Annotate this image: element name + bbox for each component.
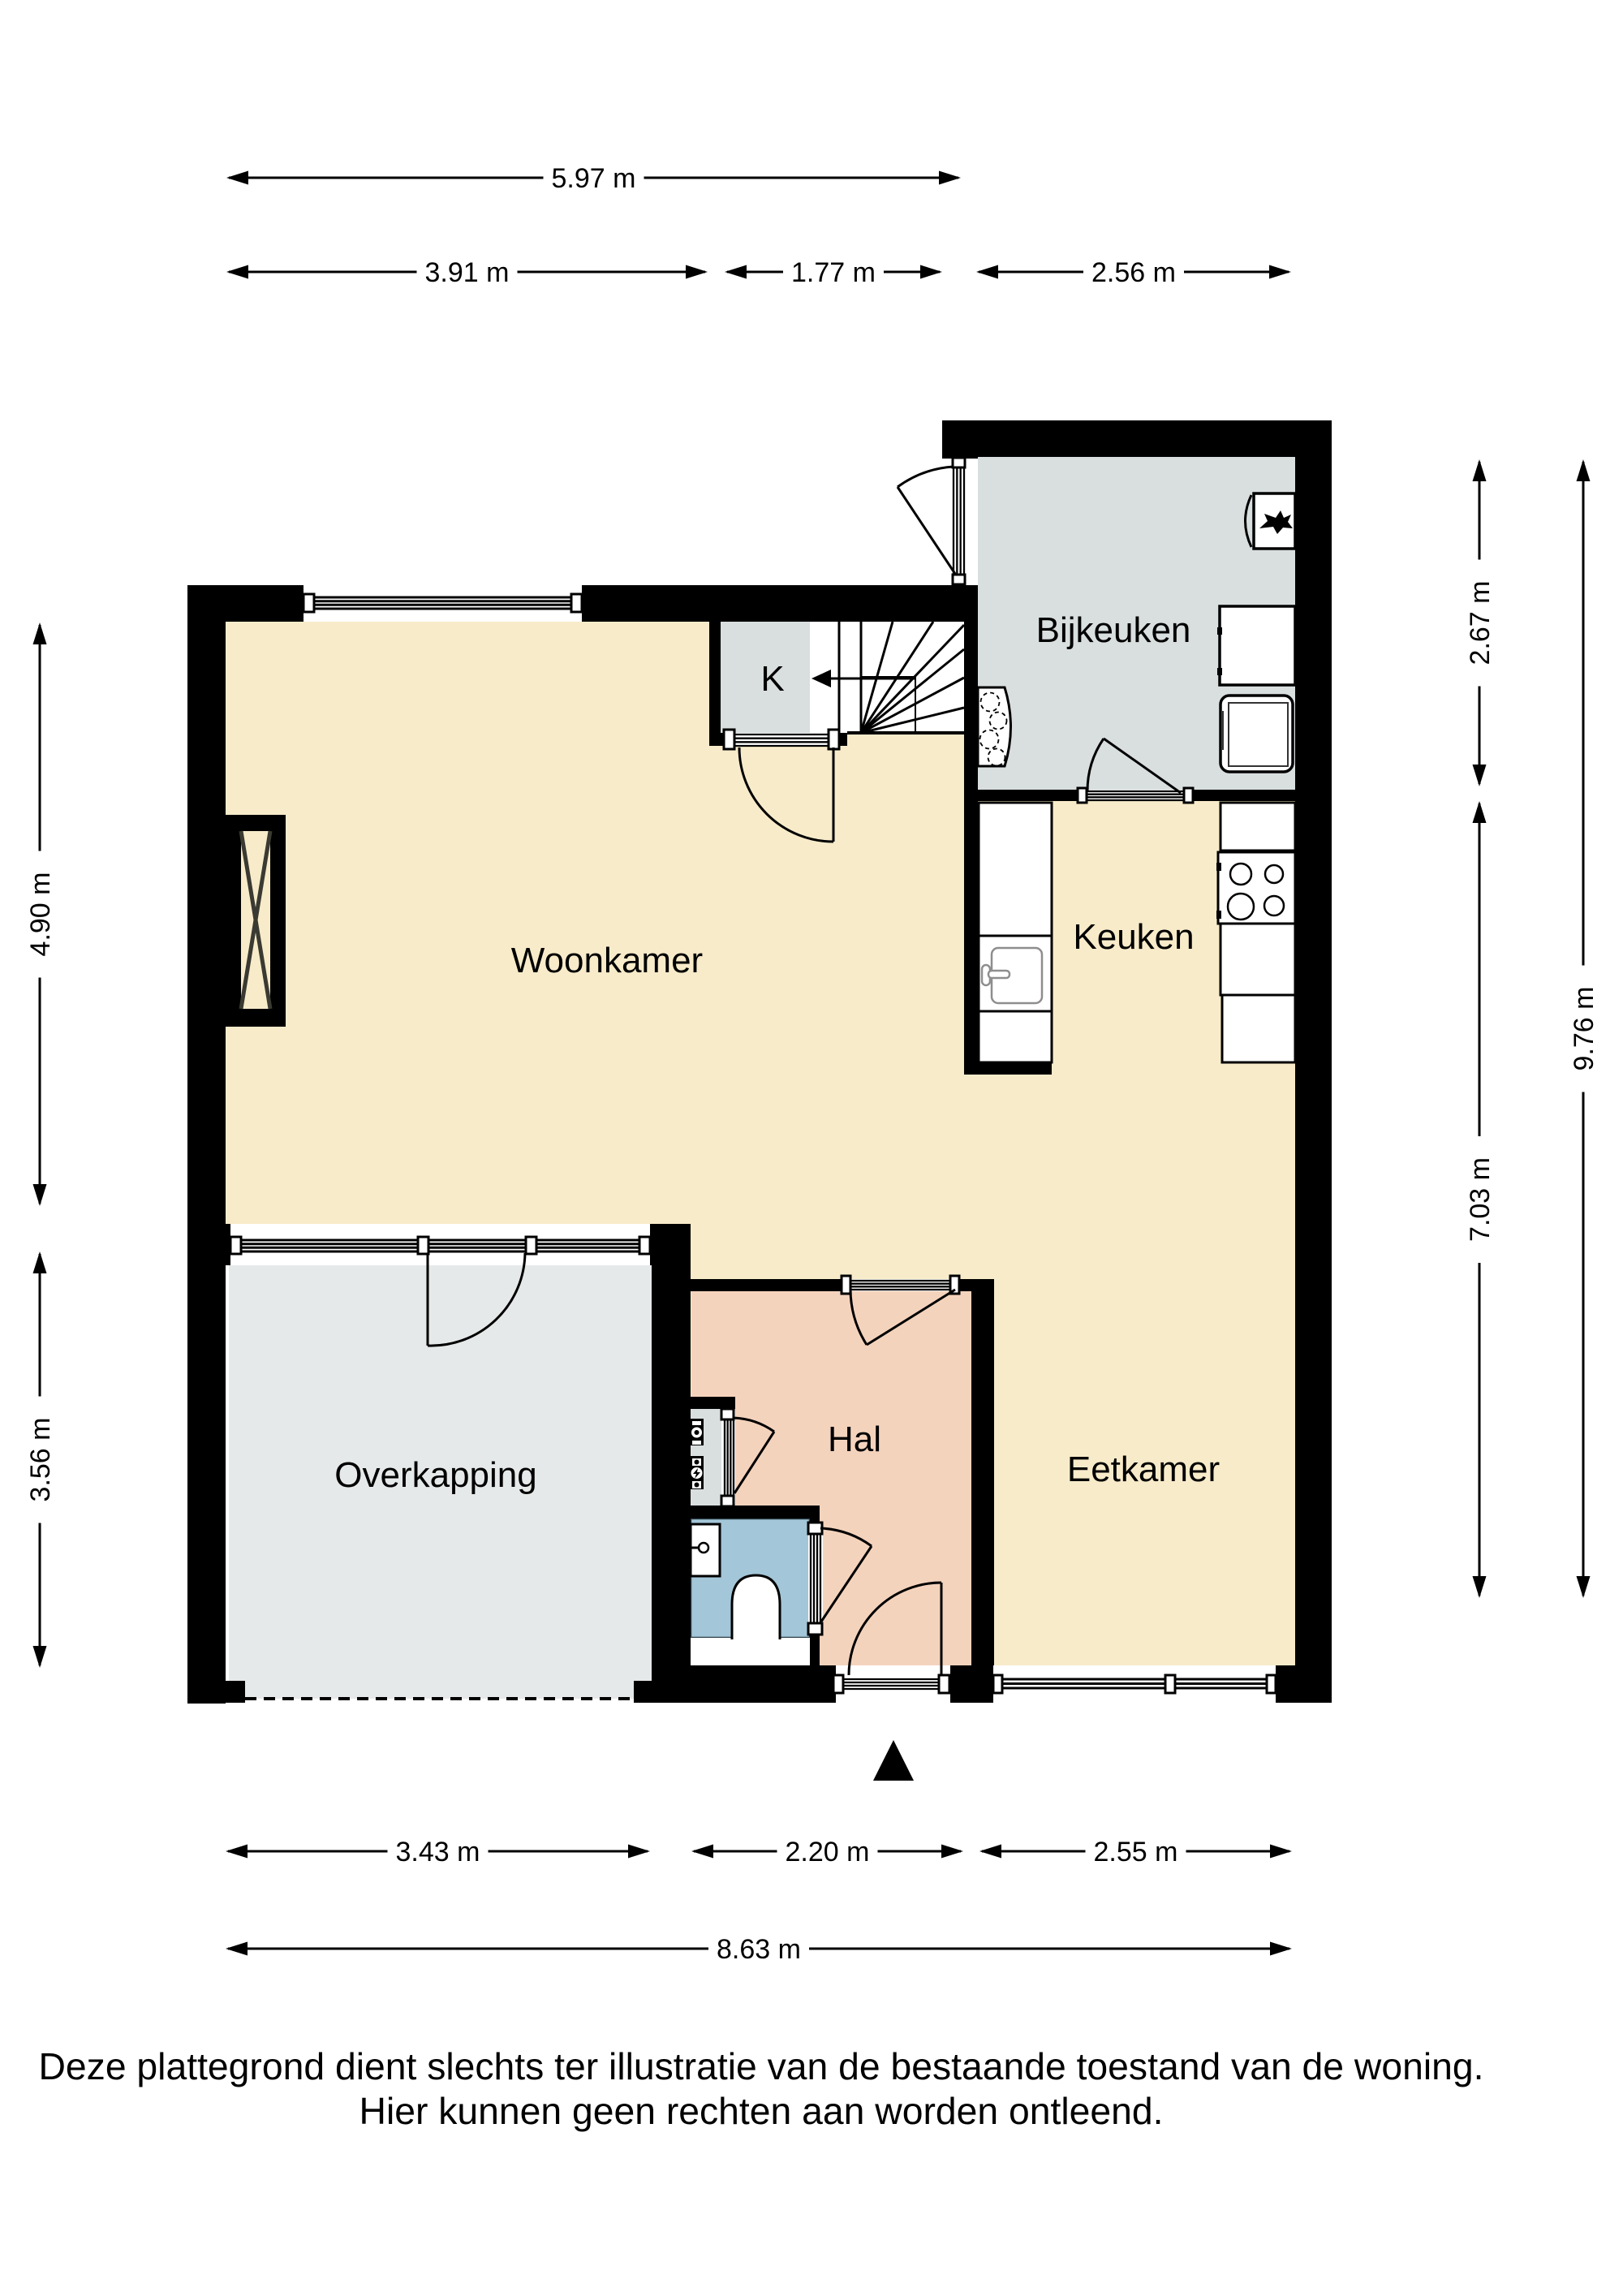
svg-text:5.97 m: 5.97 m <box>552 163 636 194</box>
svg-text:3.43 m: 3.43 m <box>396 1837 480 1867</box>
svg-text:2.56 m: 2.56 m <box>1091 257 1176 288</box>
svg-text:9.76 m: 9.76 m <box>1569 987 1599 1071</box>
svg-text:2.20 m: 2.20 m <box>786 1837 870 1867</box>
svg-text:Overkapping: Overkapping <box>334 1455 536 1495</box>
svg-text:Keuken: Keuken <box>1073 917 1194 957</box>
svg-text:Hal: Hal <box>828 1419 881 1459</box>
svg-text:1.77 m: 1.77 m <box>791 257 876 288</box>
svg-text:Woonkamer: Woonkamer <box>511 941 703 980</box>
svg-text:Deze plattegrond dient slechts: Deze plattegrond dient slechts ter illus… <box>38 2045 1483 2087</box>
svg-text:4.90 m: 4.90 m <box>25 872 56 957</box>
svg-text:K: K <box>760 659 784 699</box>
svg-text:2.55 m: 2.55 m <box>1094 1837 1178 1867</box>
svg-text:Eetkamer: Eetkamer <box>1067 1450 1220 1489</box>
svg-text:3.91 m: 3.91 m <box>425 257 510 288</box>
svg-text:Bijkeuken: Bijkeuken <box>1036 610 1191 650</box>
svg-text:3.56 m: 3.56 m <box>25 1418 56 1502</box>
svg-text:Hier kunnen geen rechten aan w: Hier kunnen geen rechten aan worden ontl… <box>359 2090 1164 2132</box>
svg-text:7.03 m: 7.03 m <box>1465 1157 1496 1242</box>
svg-text:8.63 m: 8.63 m <box>717 1934 801 1965</box>
svg-text:2.67 m: 2.67 m <box>1465 581 1496 666</box>
